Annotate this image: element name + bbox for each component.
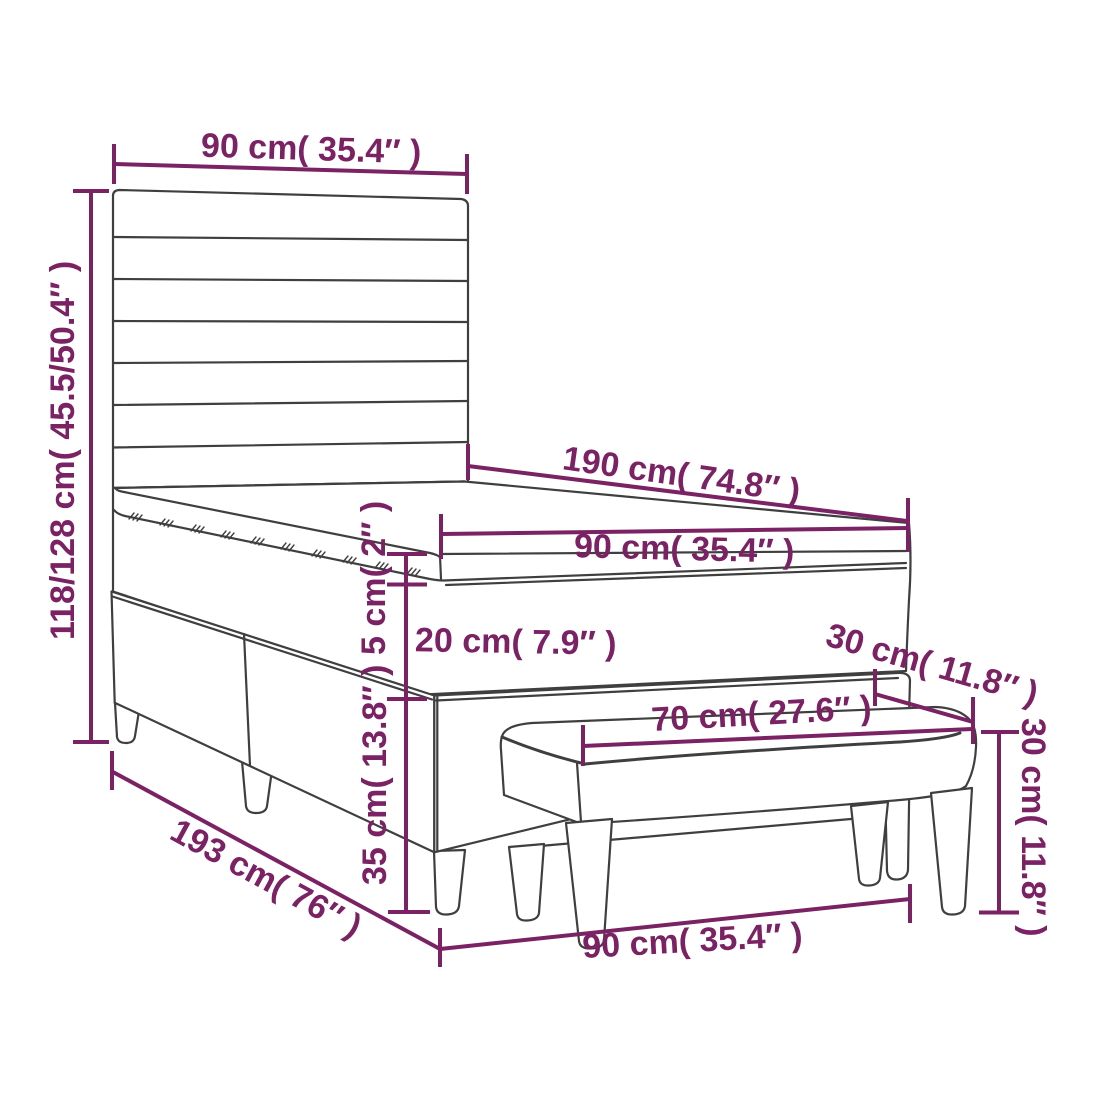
svg-text:90 cm( 35.4″ ): 90 cm( 35.4″ ) (574, 527, 795, 571)
svg-text:5 cm( 2″ ): 5 cm( 2″ ) (355, 501, 393, 655)
svg-text:90 cm( 35.4″ ): 90 cm( 35.4″ ) (200, 127, 421, 172)
svg-text:90 cm( 35.4″ ): 90 cm( 35.4″ ) (581, 916, 803, 966)
svg-text:35 cm( 13.8″ ): 35 cm( 13.8″ ) (356, 665, 394, 885)
svg-text:30 cm( 11.8″ ): 30 cm( 11.8″ ) (1014, 718, 1052, 937)
svg-text:20 cm( 7.9″ ): 20 cm( 7.9″ ) (415, 621, 617, 663)
svg-text:193 cm( 76″ ): 193 cm( 76″ ) (164, 812, 368, 946)
svg-text:118/128 cm( 45.5/50.4″ ): 118/128 cm( 45.5/50.4″ ) (44, 261, 82, 640)
